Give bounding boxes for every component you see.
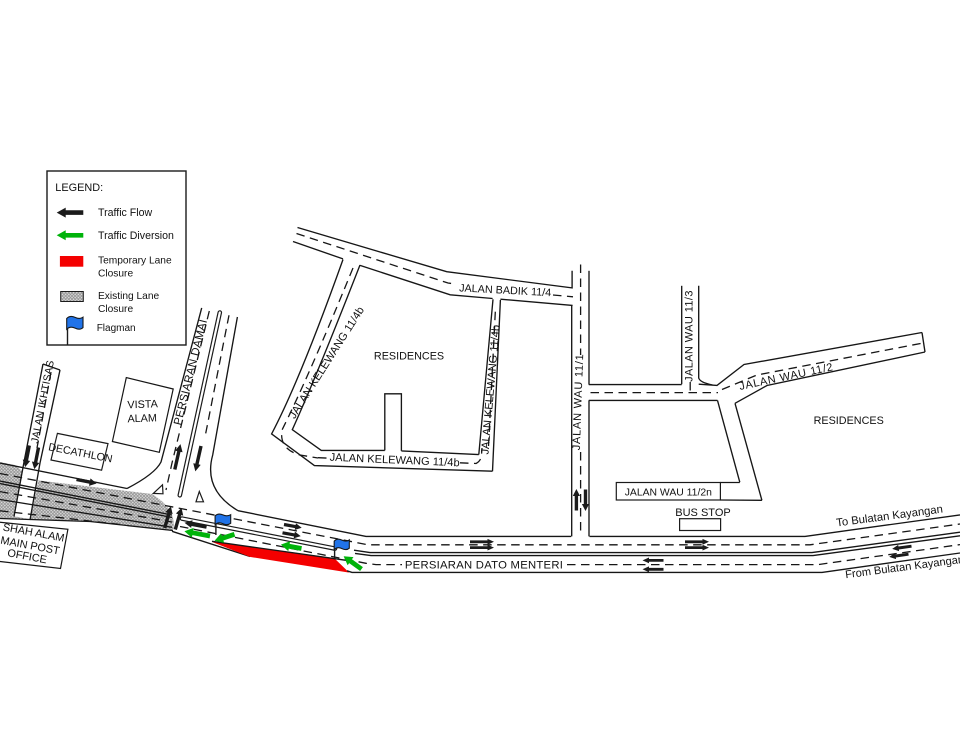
svg-text:Existing Lane: Existing Lane bbox=[98, 291, 159, 302]
svg-text:ALAM: ALAM bbox=[127, 412, 157, 425]
svg-text:RESIDENCES: RESIDENCES bbox=[814, 415, 884, 427]
svg-text:Closure: Closure bbox=[98, 304, 133, 315]
svg-text:JALAN WAU 11/2n: JALAN WAU 11/2n bbox=[625, 488, 712, 499]
svg-text:Flagman: Flagman bbox=[97, 323, 136, 334]
svg-text:Temporary Lane: Temporary Lane bbox=[98, 256, 172, 267]
svg-text:Traffic Flow: Traffic Flow bbox=[98, 207, 153, 219]
svg-text:Traffic Diversion: Traffic Diversion bbox=[98, 230, 174, 242]
svg-text:Closure: Closure bbox=[98, 269, 133, 280]
svg-text:LEGEND:: LEGEND: bbox=[55, 182, 103, 194]
svg-text:JALAN WAU 11/3: JALAN WAU 11/3 bbox=[684, 290, 696, 382]
svg-text:VISTA: VISTA bbox=[127, 398, 159, 411]
svg-text:BUS STOP: BUS STOP bbox=[675, 507, 730, 519]
svg-text:RESIDENCES: RESIDENCES bbox=[374, 351, 444, 363]
svg-text:PERSIARAN DATO MENTERI: PERSIARAN DATO MENTERI bbox=[405, 559, 563, 571]
